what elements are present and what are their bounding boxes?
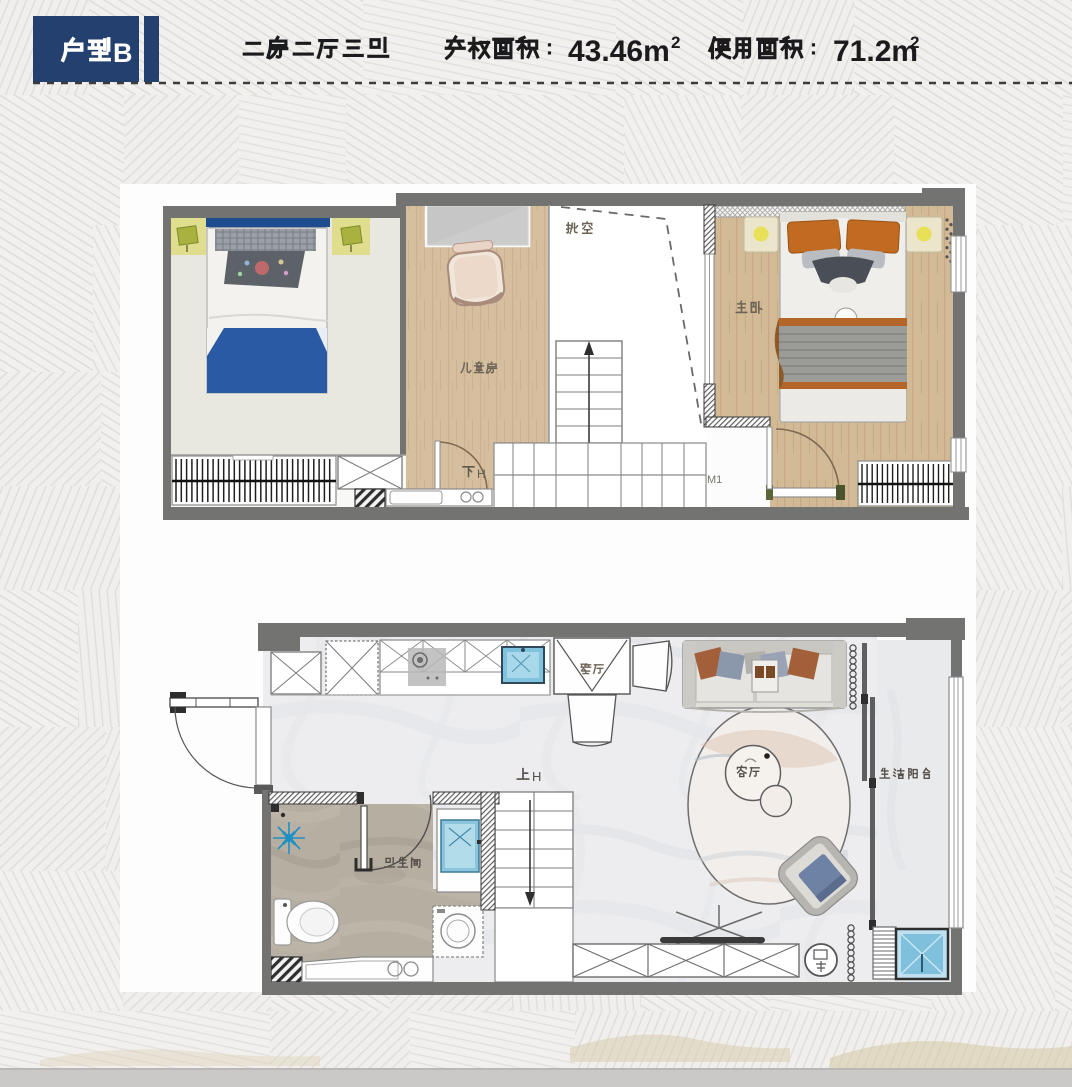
svg-text:2: 2 (671, 33, 680, 52)
svg-text:H: H (477, 467, 486, 481)
svg-text:43.46m: 43.46m (568, 35, 670, 68)
svg-text:71.2m: 71.2m (833, 35, 918, 68)
svg-text:M1: M1 (707, 474, 722, 486)
svg-text:B: B (113, 38, 133, 68)
svg-text:H: H (532, 769, 541, 784)
svg-text:2: 2 (910, 33, 919, 52)
